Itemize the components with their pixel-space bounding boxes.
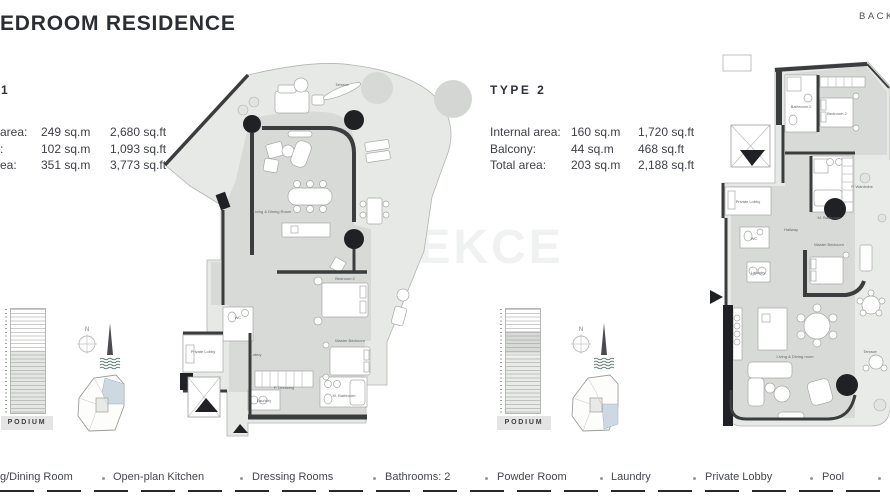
stat-sqm: 203 sq.m (571, 158, 620, 172)
stat-sqft: 468 sq.ft (638, 142, 684, 156)
building-levels-diagram (505, 308, 541, 414)
bottom-divider (0, 490, 890, 492)
key-plan (72, 372, 126, 434)
legend-bullet (600, 477, 603, 480)
building-levels-diagram (10, 308, 46, 414)
floor-number-ticks (5, 309, 7, 413)
type2-heading: TYPE 2 (490, 83, 546, 97)
svg-text:M. Bathroom: M. Bathroom (818, 215, 842, 220)
water-waves-icon (100, 358, 120, 369)
svg-text:Laundry: Laundry (257, 398, 271, 403)
legend-bullet (693, 477, 696, 480)
page-title: EDROOM RESIDENCE (0, 12, 236, 36)
floor-plan-type1: Terrace Living & Dining Room Bedroom 2 M… (160, 55, 475, 450)
svg-text:P. Dressing: P. Dressing (274, 385, 294, 390)
legend-bullet (102, 477, 105, 480)
key-plan (566, 372, 620, 434)
compass-and-landmark: N (72, 322, 128, 372)
entry-arrow-icon (710, 290, 723, 304)
floor-plan-type2: Bathroom 2 Bedroom 2 Hallway M. Bathroom… (690, 50, 890, 470)
legend-bullet (240, 477, 243, 480)
column (243, 115, 261, 133)
type2-stat-row: Total area: 203 sq.m 2,188 sq.ft (490, 158, 700, 174)
stat-sqm: 102 sq.m (41, 142, 90, 156)
svg-text:Master Bedroom: Master Bedroom (335, 338, 365, 343)
unit-highlight (602, 404, 618, 429)
stat-label: ea: (0, 158, 17, 172)
svg-text:Private Lobby: Private Lobby (191, 349, 215, 354)
legend-bullet (373, 477, 376, 480)
svg-text:Bathroom 2: Bathroom 2 (791, 104, 812, 109)
column (836, 374, 858, 396)
svg-text:Terrace: Terrace (335, 82, 349, 87)
stat-label: area: (0, 125, 27, 139)
svg-text:Master Bedroom: Master Bedroom (814, 242, 844, 247)
stat-sqm: 249 sq.m (41, 125, 90, 139)
legend-bullet (878, 477, 881, 480)
compass-and-landmark: N (566, 322, 622, 372)
svg-text:Bedroom 2: Bedroom 2 (335, 276, 355, 281)
svg-text:P. Wardrobe: P. Wardrobe (851, 184, 874, 189)
stat-label: Total area: (490, 158, 546, 172)
svg-text:Private Lobby: Private Lobby (736, 199, 760, 204)
floor-number-ticks (500, 309, 502, 413)
stat-sqm: 351 sq.m (41, 158, 90, 172)
type1-heading: 1 (1, 83, 10, 97)
legend-bullet (810, 477, 813, 480)
legend-item: Pool (822, 471, 844, 483)
stat-sqm: 44 sq.m (571, 142, 614, 156)
water-waves-icon (594, 358, 614, 369)
svg-text:WC: WC (235, 315, 242, 320)
legend-item: Open-plan Kitchen (113, 471, 204, 483)
stat-label: Internal area: (490, 125, 561, 139)
legend-item: Dressing Rooms (252, 471, 333, 483)
stat-label: : (0, 142, 3, 156)
stat-label: Balcony: (490, 142, 536, 156)
svg-text:Hallway: Hallway (784, 227, 798, 232)
type2-stat-row: Balcony: 44 sq.m 468 sq.ft (490, 142, 700, 158)
floorplan-page: TEKCE EDROOM RESIDENCE BACK 1 area: 249 … (0, 0, 890, 500)
spire-landmark-icon (107, 323, 113, 355)
podium-label: PODIUM (1, 416, 53, 430)
column (344, 229, 364, 249)
legend-item: Laundry (611, 471, 651, 483)
podium-label: PODIUM (497, 416, 551, 430)
compass-north-label: N (85, 327, 89, 333)
type2-stat-row: Internal area: 160 sq.m 1,720 sq.ft (490, 125, 700, 141)
column (344, 110, 364, 130)
stat-sqm: 160 sq.m (571, 125, 620, 139)
svg-text:Lobby: Lobby (251, 352, 262, 357)
svg-text:Bedroom 2: Bedroom 2 (827, 111, 847, 116)
svg-text:WC: WC (751, 236, 758, 241)
stat-sqft: 1,720 sq.ft (638, 125, 694, 139)
legend-item: Bathrooms: 2 (385, 471, 450, 483)
stat-sqft: 2,680 sq.ft (110, 125, 166, 139)
svg-text:Living & Dining room: Living & Dining room (777, 354, 815, 359)
legend-item: Private Lobby (705, 471, 772, 483)
stat-sqft: 2,188 sq.ft (638, 158, 694, 172)
legend-item: Powder Room (497, 471, 567, 483)
compass-north-label: N (579, 327, 583, 333)
svg-text:M. Bathroom: M. Bathroom (333, 393, 357, 398)
legend-bullet (485, 477, 488, 480)
spire-landmark-icon (601, 323, 607, 355)
legend-item: g/Dining Room (0, 471, 73, 483)
svg-text:Living & Dining Room: Living & Dining Room (253, 209, 292, 214)
svg-text:Laundry: Laundry (751, 270, 765, 275)
svg-text:Terrace: Terrace (863, 349, 877, 354)
stat-sqft: 1,093 sq.ft (110, 142, 166, 156)
stat-sqft: 3,773 sq.ft (110, 158, 166, 172)
back-link[interactable]: BACK (859, 11, 890, 22)
